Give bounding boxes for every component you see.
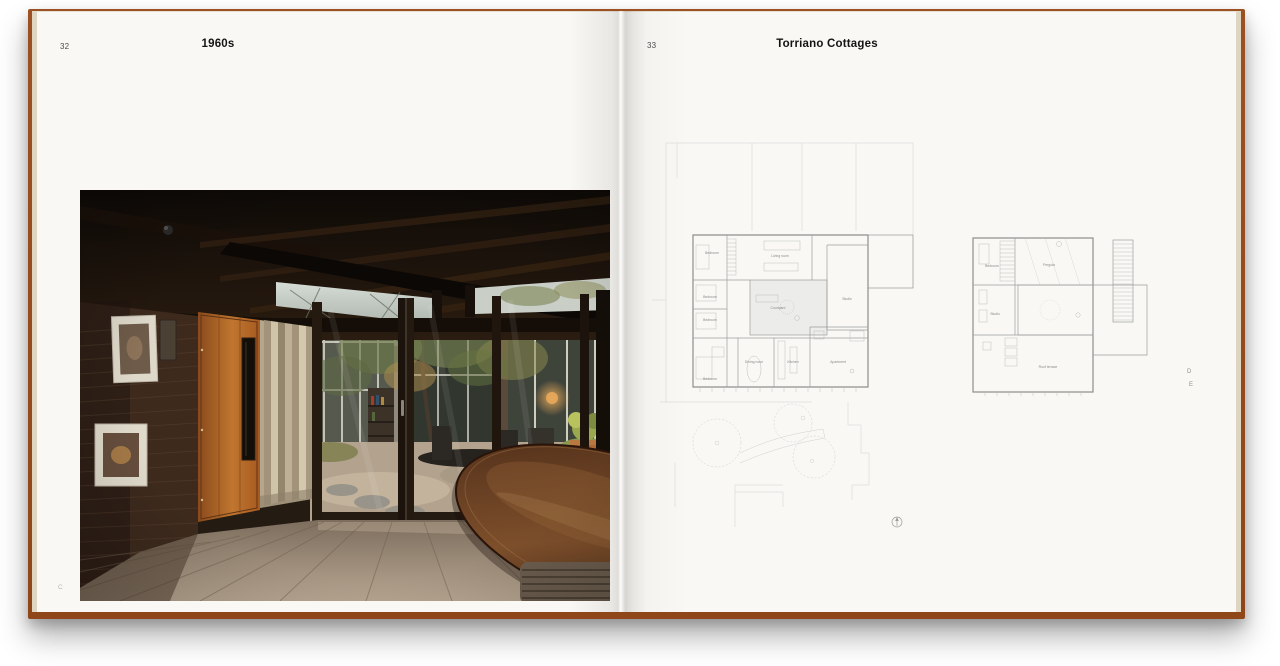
edge-mark-d: D (1187, 369, 1191, 375)
edge-mark-e: E (1189, 382, 1193, 388)
book-spread-product-shot: 32 1960s C (0, 0, 1280, 666)
page-number-right: 33 (647, 41, 656, 50)
room-label: Dining room (745, 360, 763, 364)
interior-photograph (80, 190, 610, 601)
first-floor-plan: Bedroom Pergola Studio Roof terrace (965, 230, 1165, 400)
room-label: Studio (842, 297, 852, 301)
page-number-left: 32 (60, 42, 69, 51)
room-label: Kitchen (787, 360, 798, 364)
right-page-title: Torriano Cottages (742, 38, 912, 50)
ground-floor-plan: Bedroom Living room Bedroom Bedroom Cour… (652, 135, 942, 535)
left-page-title: 1960s (133, 38, 303, 50)
room-label: Bedroom (705, 251, 719, 255)
room-label: Bedroom (703, 377, 717, 381)
room-label: Apartment (830, 360, 846, 364)
room-label: Courtyard (771, 306, 786, 310)
vignette (80, 190, 610, 601)
room-label: Roof terrace (1039, 365, 1058, 369)
room-label: Studio (990, 312, 1000, 316)
north-arrow-icon (892, 517, 902, 527)
room-label: Bedroom (703, 318, 717, 322)
room-label: Living room (771, 254, 789, 258)
room-label: Bedroom (703, 295, 717, 299)
footer-mark: C (58, 584, 63, 591)
room-label: Bedroom (985, 264, 999, 268)
room-label: Pergola (1043, 263, 1055, 267)
